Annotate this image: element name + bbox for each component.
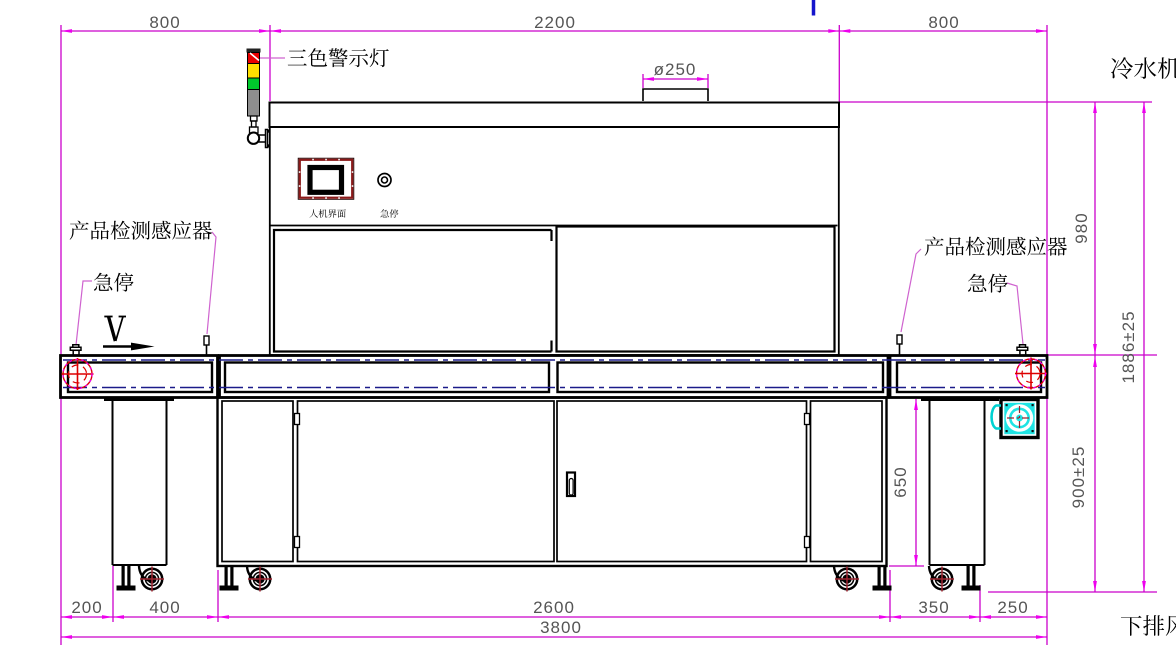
svg-text:400: 400 <box>149 598 180 617</box>
svg-text:2600: 2600 <box>533 598 575 617</box>
svg-text:250: 250 <box>997 598 1028 617</box>
svg-text:800: 800 <box>149 13 180 32</box>
svg-text:2200: 2200 <box>534 13 576 32</box>
svg-text:3800: 3800 <box>540 618 582 637</box>
svg-text:1886±25: 1886±25 <box>1119 310 1138 383</box>
svg-text:ø250: ø250 <box>654 60 697 79</box>
svg-text:350: 350 <box>918 598 949 617</box>
svg-text:650: 650 <box>891 466 910 497</box>
svg-text:980: 980 <box>1072 212 1091 243</box>
svg-text:800: 800 <box>928 13 959 32</box>
svg-text:200: 200 <box>71 598 102 617</box>
svg-text:900±25: 900±25 <box>1069 446 1088 509</box>
